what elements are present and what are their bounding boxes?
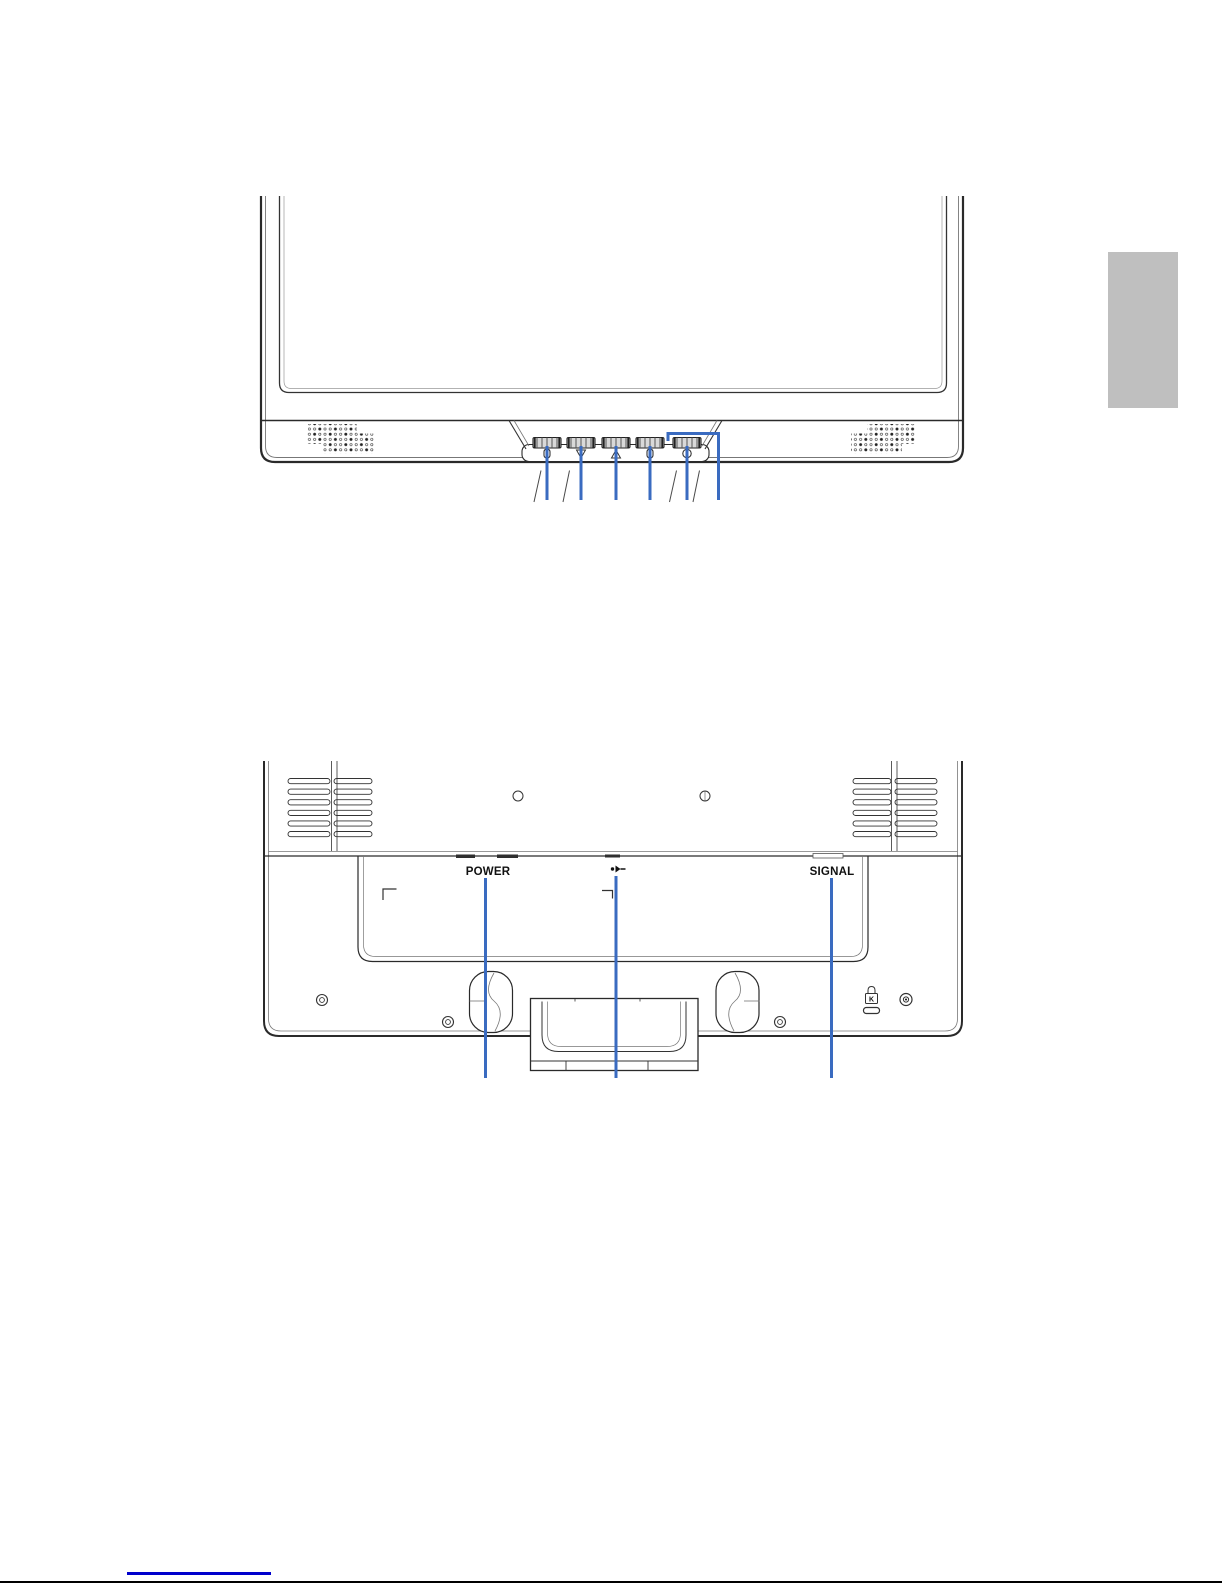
vesa-screw-holes [513,791,710,801]
footer-rule [0,1581,1222,1583]
left-vent-grille [288,761,372,851]
stand-bracket [531,999,699,1071]
right-vent-grille [853,761,937,851]
front-bezel [261,196,963,462]
audio-line-in-icon [611,866,626,873]
kensington-slot [864,1008,880,1014]
kensington-k-label: K [869,997,874,1004]
footer-hyperlink-underline[interactable] [127,1572,271,1575]
kensington-lock-icon: K [864,987,880,1014]
manual-page: { "page": { "background": "#ffffff" }, "… [0,0,1225,1585]
power-connector-label: POWER [466,866,511,878]
front-view-diagram [250,195,975,510]
panel-corner-marks [383,889,613,900]
rear-view-diagram: POWER SIGNAL K [250,760,975,1085]
right-speaker-grille [851,424,916,454]
signal-connector-label: SIGNAL [810,866,855,878]
left-speaker-grille [308,424,375,454]
section-side-tab [1108,252,1178,408]
